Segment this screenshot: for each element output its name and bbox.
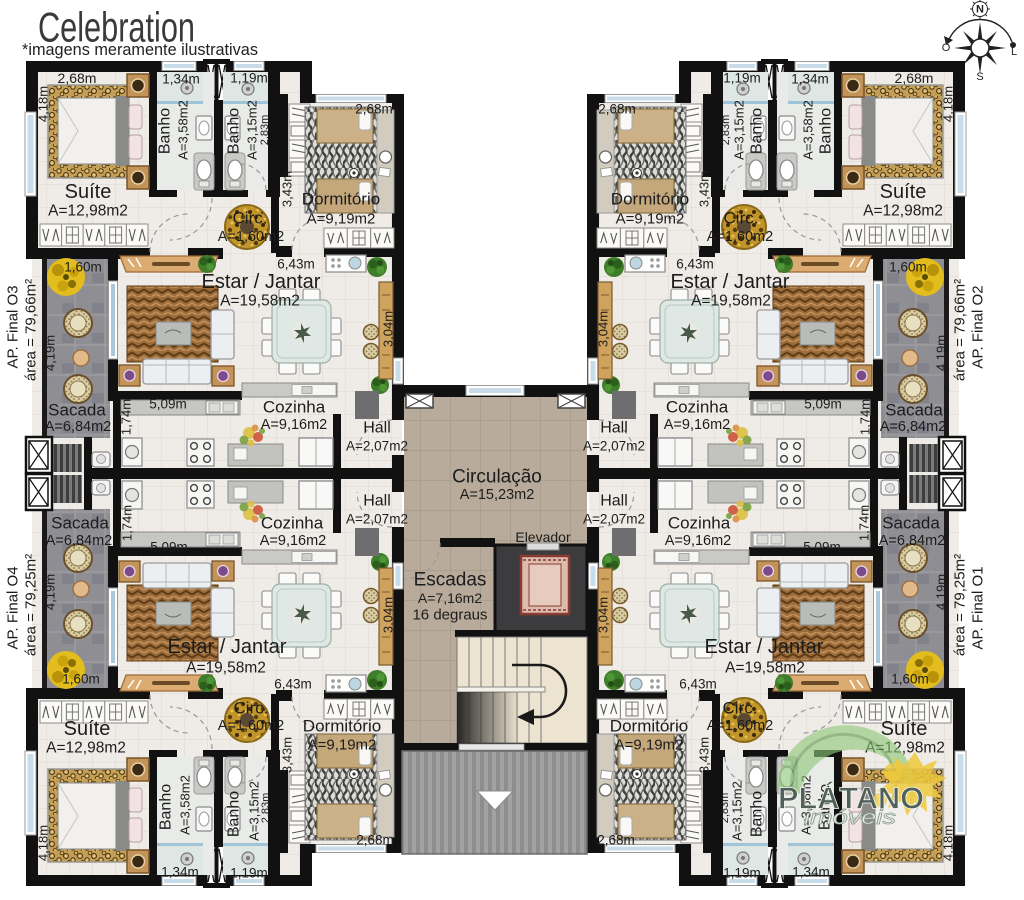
svg-text:Banho: Banho <box>157 108 174 154</box>
svg-text:Circulação: Circulação <box>452 467 542 488</box>
svg-text:3,04m: 3,04m <box>381 597 396 633</box>
svg-text:Banho: Banho <box>158 784 175 830</box>
svg-text:3,43m: 3,43m <box>280 171 295 207</box>
svg-text:3,43m: 3,43m <box>697 171 712 207</box>
svg-text:Escadas: Escadas <box>414 570 487 591</box>
svg-text:Estar / Jantar: Estar / Jantar <box>202 271 321 293</box>
svg-text:1,74m: 1,74m <box>858 399 873 435</box>
svg-text:AP. Final O1: AP. Final O1 <box>970 566 987 649</box>
svg-text:2,68m: 2,68m <box>895 70 934 86</box>
svg-text:Sacada: Sacada <box>51 514 109 533</box>
svg-text:Hall: Hall <box>363 420 391 437</box>
svg-text:A=2,07m2: A=2,07m2 <box>346 439 408 454</box>
svg-text:A=3,15m2: A=3,15m2 <box>730 781 745 841</box>
svg-text:3,04m: 3,04m <box>381 311 396 347</box>
svg-text:AP. Final O2: AP. Final O2 <box>970 285 987 368</box>
svg-text:A=6,84m2: A=6,84m2 <box>46 533 113 549</box>
svg-text:3,04m: 3,04m <box>596 311 611 347</box>
svg-text:N: N <box>976 4 984 16</box>
svg-text:5,09m: 5,09m <box>149 397 187 412</box>
svg-text:Circ.: Circ. <box>233 209 268 228</box>
svg-text:A=12,98m2: A=12,98m2 <box>48 203 128 220</box>
svg-text:2,83m: 2,83m <box>260 793 272 824</box>
svg-text:Banho: Banho <box>749 108 766 154</box>
svg-text:1,60m: 1,60m <box>64 260 102 275</box>
svg-text:2,83m: 2,83m <box>719 793 731 824</box>
svg-text:1,60m: 1,60m <box>889 260 927 275</box>
svg-text:Hall: Hall <box>363 493 391 510</box>
svg-text:Estar / Jantar: Estar / Jantar <box>705 636 824 658</box>
svg-text:Elevador: Elevador <box>515 529 571 545</box>
svg-text:4,19m: 4,19m <box>43 335 58 371</box>
svg-text:2,68m: 2,68m <box>597 833 635 848</box>
svg-text:4,19m: 4,19m <box>934 574 949 610</box>
svg-text:16 degraus: 16 degraus <box>412 607 487 624</box>
svg-text:A=19,58m2: A=19,58m2 <box>220 293 300 310</box>
svg-text:A=9,16m2: A=9,16m2 <box>261 417 328 433</box>
svg-text:A=6,84m2: A=6,84m2 <box>45 419 112 435</box>
svg-text:1,34m: 1,34m <box>161 865 199 880</box>
svg-text:Banho: Banho <box>749 791 766 837</box>
svg-text:área = 79,25m²: área = 79,25m² <box>952 554 969 656</box>
svg-text:O: O <box>942 42 951 54</box>
svg-text:A=12,98m2: A=12,98m2 <box>863 203 943 220</box>
svg-text:área = 79,66m²: área = 79,66m² <box>952 279 969 381</box>
svg-text:A=12,98m2: A=12,98m2 <box>46 740 126 757</box>
svg-text:Sacada: Sacada <box>882 514 940 533</box>
svg-text:A=9,19m2: A=9,19m2 <box>307 211 376 228</box>
svg-text:1,74m: 1,74m <box>120 505 135 541</box>
svg-text:1,74m: 1,74m <box>857 505 872 541</box>
svg-text:Hall: Hall <box>600 420 628 437</box>
svg-text:A=9,19m2: A=9,19m2 <box>616 211 685 228</box>
svg-text:A=19,58m2: A=19,58m2 <box>691 293 771 310</box>
svg-text:Suíte: Suíte <box>65 181 112 203</box>
svg-text:Cozinha: Cozinha <box>666 398 729 417</box>
svg-text:2,83m: 2,83m <box>259 115 271 146</box>
svg-text:A=3,15m2: A=3,15m2 <box>245 100 260 160</box>
svg-text:L: L <box>1011 46 1017 58</box>
svg-text:1,60m: 1,60m <box>62 672 100 687</box>
svg-text:A=19,58m2: A=19,58m2 <box>186 660 266 677</box>
svg-text:Estar / Jantar: Estar / Jantar <box>671 271 790 293</box>
svg-text:AP. Final O3: AP. Final O3 <box>5 285 22 368</box>
svg-text:Circ.: Circ. <box>234 699 269 718</box>
svg-text:Banho: Banho <box>226 108 243 154</box>
svg-text:A=3,58m2: A=3,58m2 <box>176 100 191 160</box>
svg-text:Cozinha: Cozinha <box>261 514 324 533</box>
svg-text:2,68m: 2,68m <box>598 102 636 117</box>
svg-text:A=2,07m2: A=2,07m2 <box>583 512 645 527</box>
svg-text:A=3,58m2: A=3,58m2 <box>801 100 816 160</box>
svg-text:Dormitório: Dormitório <box>303 717 381 736</box>
svg-text:3,04m: 3,04m <box>596 597 611 633</box>
svg-text:Suíte: Suíte <box>64 718 111 740</box>
svg-text:Cozinha: Cozinha <box>263 398 326 417</box>
svg-text:1,34m: 1,34m <box>792 865 830 880</box>
svg-text:6,43m: 6,43m <box>679 677 717 692</box>
svg-text:Circ.: Circ. <box>723 699 758 718</box>
svg-text:Dormitório: Dormitório <box>611 190 689 209</box>
svg-text:S: S <box>976 71 983 83</box>
svg-text:Circ.: Circ. <box>724 209 759 228</box>
svg-text:4,18m: 4,18m <box>36 825 51 861</box>
svg-text:*imagens meramente ilustrativa: *imagens meramente ilustrativas <box>22 41 258 59</box>
svg-text:A=1,60m2: A=1,60m2 <box>707 718 774 734</box>
svg-text:1,19m: 1,19m <box>230 71 268 86</box>
svg-text:AP. Final O4: AP. Final O4 <box>5 566 22 649</box>
svg-text:área = 79,66m²: área = 79,66m² <box>23 279 40 381</box>
svg-text:A=9,19m2: A=9,19m2 <box>308 737 377 754</box>
svg-text:1,19m: 1,19m <box>230 866 268 881</box>
svg-text:A=9,16m2: A=9,16m2 <box>664 417 731 433</box>
svg-text:4,19m: 4,19m <box>934 335 949 371</box>
svg-text:5,09m: 5,09m <box>804 397 842 412</box>
svg-text:6,43m: 6,43m <box>277 257 315 272</box>
svg-text:A=1,60m2: A=1,60m2 <box>218 229 285 245</box>
svg-text:A=1,60m2: A=1,60m2 <box>218 718 285 734</box>
svg-text:Banho: Banho <box>818 108 835 154</box>
svg-text:Estar / Jantar: Estar / Jantar <box>168 636 287 658</box>
svg-text:A=2,07m2: A=2,07m2 <box>346 512 408 527</box>
svg-text:5,09m: 5,09m <box>803 540 841 555</box>
svg-text:1,34m: 1,34m <box>162 72 200 87</box>
svg-text:A=7,16m2: A=7,16m2 <box>418 590 482 606</box>
svg-text:A=2,07m2: A=2,07m2 <box>583 439 645 454</box>
svg-text:Suíte: Suíte <box>881 718 928 740</box>
svg-text:1,19m: 1,19m <box>723 71 761 86</box>
svg-text:área = 79,25m²: área = 79,25m² <box>23 554 40 656</box>
svg-text:1,19m: 1,19m <box>723 866 761 881</box>
svg-text:A=9,19m2: A=9,19m2 <box>615 737 684 754</box>
svg-text:A=6,84m2: A=6,84m2 <box>879 533 946 549</box>
svg-text:Sacada: Sacada <box>885 401 943 420</box>
svg-text:A=1,60m2: A=1,60m2 <box>707 229 774 245</box>
svg-text:2,68m: 2,68m <box>355 102 393 117</box>
svg-text:1,60m: 1,60m <box>891 672 929 687</box>
svg-text:4,18m: 4,18m <box>941 825 956 861</box>
svg-text:2,68m: 2,68m <box>356 833 394 848</box>
svg-text:4,18m: 4,18m <box>941 86 956 122</box>
svg-text:A=15,23m2: A=15,23m2 <box>460 487 535 503</box>
svg-text:3,43m: 3,43m <box>697 737 712 773</box>
svg-text:A=3,15m2: A=3,15m2 <box>732 100 747 160</box>
svg-text:Suíte: Suíte <box>880 181 927 203</box>
svg-text:A=3,58m2: A=3,58m2 <box>178 775 193 835</box>
svg-text:Dormitório: Dormitório <box>610 717 688 736</box>
svg-text:3,43m: 3,43m <box>280 737 295 773</box>
svg-text:1,74m: 1,74m <box>119 399 134 435</box>
svg-text:A=9,16m2: A=9,16m2 <box>665 533 732 549</box>
svg-text:2,83m: 2,83m <box>720 115 732 146</box>
svg-text:A=19,58m2: A=19,58m2 <box>725 660 805 677</box>
svg-text:4,19m: 4,19m <box>43 574 58 610</box>
svg-text:imóveis: imóveis <box>804 807 896 829</box>
svg-text:2,68m: 2,68m <box>58 70 97 86</box>
svg-text:5,09m: 5,09m <box>150 540 188 555</box>
svg-text:A=9,16m2: A=9,16m2 <box>260 533 327 549</box>
svg-text:4,18m: 4,18m <box>36 86 51 122</box>
svg-text:A=6,84m2: A=6,84m2 <box>880 419 947 435</box>
svg-text:6,43m: 6,43m <box>676 257 714 272</box>
svg-text:Sacada: Sacada <box>48 401 106 420</box>
svg-text:Dormitório: Dormitório <box>302 190 380 209</box>
svg-text:Hall: Hall <box>600 493 628 510</box>
svg-text:Banho: Banho <box>226 791 243 837</box>
svg-text:1,34m: 1,34m <box>791 72 829 87</box>
svg-text:Cozinha: Cozinha <box>668 514 731 533</box>
svg-text:6,43m: 6,43m <box>274 677 312 692</box>
